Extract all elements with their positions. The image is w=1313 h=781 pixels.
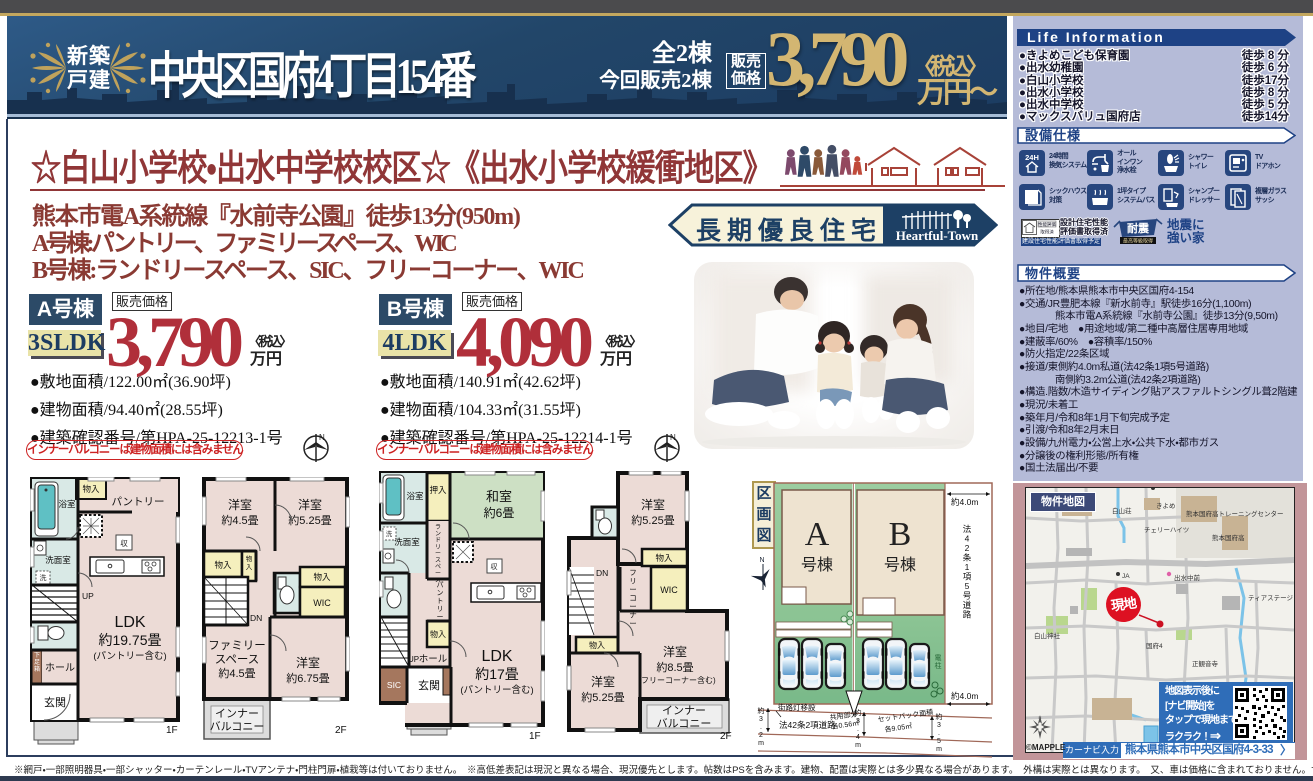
svg-text:玄関: 玄関 [418,679,440,692]
svg-text:物: 物 [246,554,253,563]
svg-text:洋室: 洋室 [663,644,687,659]
svg-text:性能評価: 性能評価 [1038,221,1056,228]
svg-text:収: 収 [491,562,498,571]
svg-text:ファミリー: ファミリー [208,640,266,652]
svg-text:約8.5畳: 約8.5畳 [656,660,693,674]
svg-text:耐震: 耐震 [1127,221,1150,235]
svg-text:洗面室: 洗面室 [45,555,71,565]
svg-text:チェリーハイツ: チェリーハイツ [1144,526,1189,534]
svg-text:出水中前: 出水中前 [1174,573,1201,582]
svg-text:押入: 押入 [429,485,447,495]
svg-text:スペース: スペース [215,654,260,666]
svg-text:洋室: 洋室 [591,674,615,689]
svg-text:玄関: 玄関 [44,696,66,709]
svg-text:洋室: 洋室 [296,655,320,670]
svg-text:WIC: WIC [313,598,331,608]
svg-text:街路灯移設: 街路灯移設 [778,702,816,712]
svg-text:約4.5畳: 約4.5畳 [221,513,258,527]
svg-text:約3.5m: 約3.5m [936,712,943,753]
svg-text:フリーコーナー: フリーコーナー [629,568,637,628]
svg-text:洋室: 洋室 [641,497,665,512]
svg-text:物入: 物入 [214,560,232,570]
svg-text:約19.75畳: 約19.75畳 [98,632,161,648]
svg-text:インナー: インナー [662,704,706,717]
svg-text:物入: 物入 [655,553,673,563]
svg-text:バルコニー: バルコニー [210,720,265,733]
svg-text:約6畳: 約6畳 [484,505,515,520]
svg-text:最高等級取得: 最高等級取得 [1123,238,1153,245]
svg-text:WIC: WIC [660,585,678,595]
svg-text:各9.05㎡: 各9.05㎡ [884,721,913,734]
svg-text:DN: DN [596,568,608,578]
svg-text:ランドリースペース: ランドリースペース [435,524,441,584]
svg-text:24H: 24H [1025,153,1039,162]
svg-text:UP: UP [82,591,94,601]
svg-text:白山神社: 白山神社 [1034,631,1061,640]
svg-text:(フリーコーナー含む): (フリーコーナー含む) [638,676,716,685]
svg-text:熊本国府高トレーニングセンター: 熊本国府高トレーニングセンター [1186,509,1284,518]
svg-text:物入: 物入 [589,640,605,650]
svg-text:B: B [889,516,912,553]
svg-text:浴室: 浴室 [58,499,76,509]
svg-text:約5.25畳: 約5.25畳 [631,513,674,527]
svg-text:パントリー: パントリー [111,496,164,508]
svg-text:N: N [1039,715,1042,720]
svg-text:セットバック面積: セットバック面積 [877,707,934,724]
svg-text:1F: 1F [166,725,178,736]
svg-text:洋室: 洋室 [298,497,322,512]
svg-text:1F: 1F [529,731,541,742]
svg-text:約3.4m: 約3.4m [855,708,862,749]
svg-text:N: N [319,433,325,442]
svg-text:インナー: インナー [215,707,259,720]
svg-text:号棟: 号棟 [884,556,916,574]
svg-text:2F: 2F [335,725,347,736]
svg-text:ホール: ホール [45,662,75,674]
svg-text:(パントリー含む): (パントリー含む) [93,651,166,662]
svg-text:約4.0m: 約4.0m [951,497,978,507]
svg-text:LDK: LDK [481,648,512,665]
svg-text:法42条2項道路: 法42条2項道路 [779,720,836,730]
svg-text:SIC: SIC [387,680,401,690]
svg-text:(パントリー含む): (パントリー含む) [460,685,533,696]
svg-text:下足箱: 下足箱 [34,652,40,673]
svg-text:洋室: 洋室 [228,497,252,512]
svg-text:和室: 和室 [486,489,512,504]
svg-text:約17畳: 約17畳 [475,666,519,682]
svg-text:LDK: LDK [114,614,145,631]
svg-text:N: N [759,557,764,564]
svg-text:ホール: ホール [419,654,448,665]
svg-text:きよめ: きよめ [1156,502,1176,510]
svg-text:物入: 物入 [430,629,446,639]
svg-text:物入: 物入 [313,572,331,582]
svg-text:入: 入 [246,563,253,571]
svg-text:約4.5畳: 約4.5畳 [218,666,255,680]
svg-text:パントリー: パントリー [437,581,444,621]
svg-text:浴室: 浴室 [406,491,424,501]
svg-text:約6.75畳: 約6.75畳 [286,671,329,685]
svg-text:A: A [805,516,830,553]
svg-text:取得済: 取得済 [1040,229,1054,236]
svg-text:正観音寺: 正観音寺 [1192,659,1219,668]
svg-text:バルコニー: バルコニー [657,717,712,730]
svg-text:N: N [670,433,676,442]
svg-text:2F: 2F [720,731,732,742]
svg-text:約4.0m: 約4.0m [951,691,978,701]
svg-text:号棟: 号棟 [801,556,833,574]
svg-text:国府4: 国府4 [1146,642,1163,650]
svg-text:収: 収 [120,539,128,548]
svg-text:DN: DN [250,613,262,623]
svg-text:熊本国府高: 熊本国府高 [1212,533,1245,542]
svg-text:白山荘: 白山荘 [1112,506,1132,515]
svg-text:約3.2m: 約3.2m [758,706,765,747]
svg-text:物入: 物入 [82,484,100,494]
svg-text:ティアステージ: ティアステージ [1248,594,1293,602]
svg-text:洗: 洗 [386,529,393,538]
svg-text:約5.25畳: 約5.25畳 [288,513,331,527]
svg-text:洗面室: 洗面室 [394,537,420,547]
svg-text:洗: 洗 [40,573,47,582]
svg-text:JA: JA [1122,573,1130,580]
svg-text:約5.25畳: 約5.25畳 [581,690,624,704]
